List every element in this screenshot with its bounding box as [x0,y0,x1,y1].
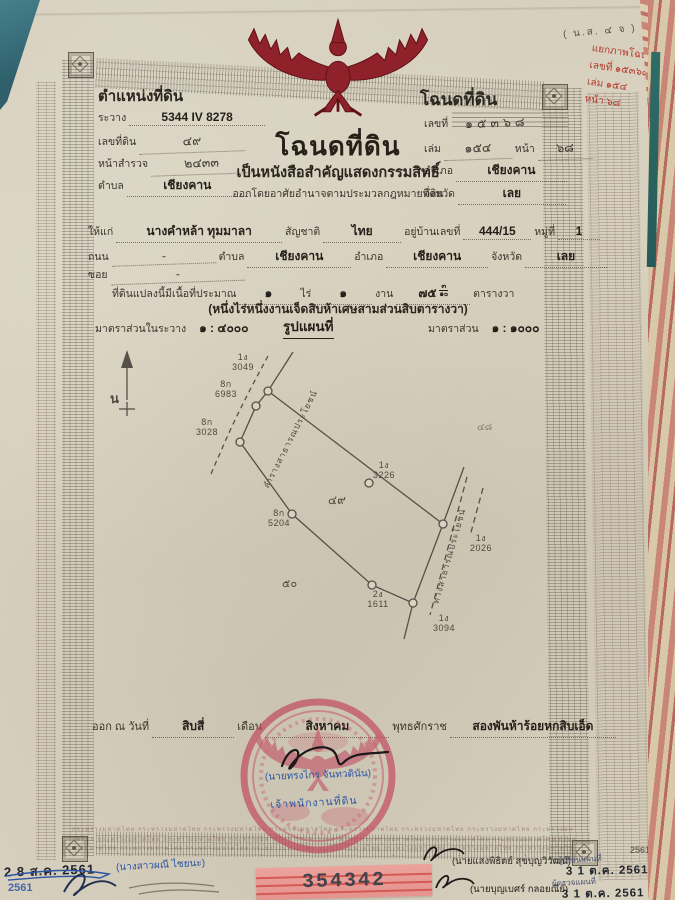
date-stamp-2: 3 1 ต.ค. 2561 [562,884,645,900]
boundary-marker: 8ก3028 [196,417,218,437]
issue-year: สองพันห้าร้อยหกสิบเอ็ด [450,717,616,738]
boundary-marker: 8ก6983 [215,379,237,399]
boundary-marker: 1ง3049 [232,352,254,372]
issue-day: สิบสี่ [152,717,234,738]
boundary-marker: 1ง3094 [433,613,455,633]
received-date-partial: 2561 [8,882,32,894]
north-label: น [110,388,119,409]
neighbor-parcel-ne: ๔๘ [477,420,493,436]
boundary-marker: 8ก5204 [268,508,290,528]
boundary-marker: 1ง3226 [373,460,395,480]
officer1-name: (นายแสงพิธิตย์ สุขบุญวิวัฒน์) [452,854,571,869]
issue-prefix: ออก ณ วันที่ [92,721,149,733]
boundary-marker: 2ง1611 [367,589,388,609]
serial-number-sticker: 354342 [256,864,433,900]
neighbor-parcel-sw: ๕๐ [282,574,298,593]
deed-photo: กระทรวงมหาดไทย กระทรวงมหาดไทย กระทรวงมหา… [0,0,675,900]
serial-number: 354342 [256,868,433,896]
boundary-marker: 1ง2026 [470,533,492,553]
parcel-number-on-map: ๔๙ [328,491,347,511]
